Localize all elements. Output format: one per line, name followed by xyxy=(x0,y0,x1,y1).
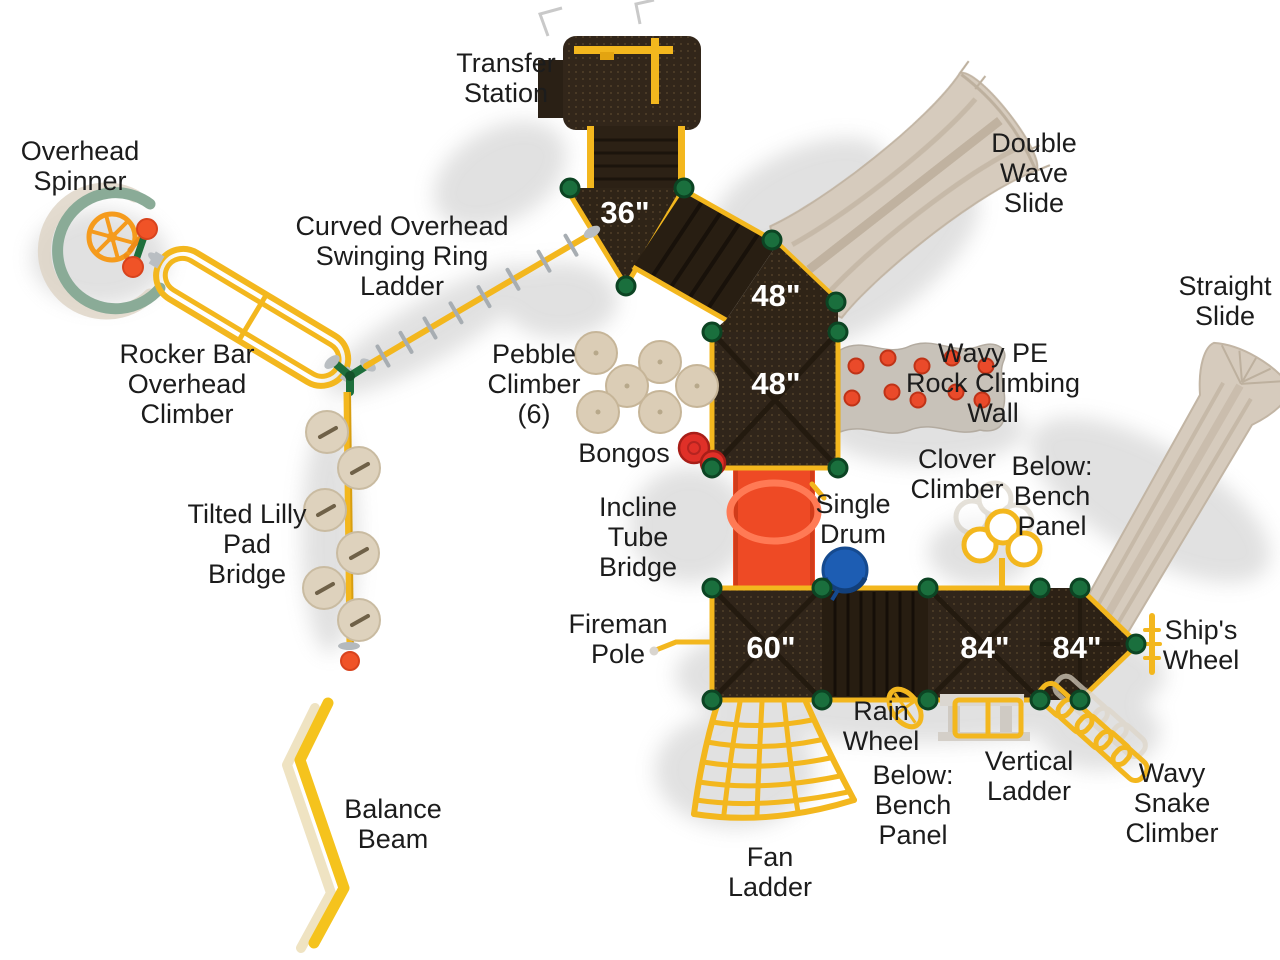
label-wavy-snake-climber: Wavy Snake Climber xyxy=(1125,758,1218,848)
label-curved-overhead-swinging-ring-ladder: Curved Overhead Swinging Ring Ladder xyxy=(295,211,508,301)
pebble-climber xyxy=(575,332,718,433)
label-ships-wheel: Ship's Wheel xyxy=(1163,615,1240,675)
label-below-bench-panel-right: Below: Bench Panel xyxy=(1011,451,1092,541)
balance-beam xyxy=(287,703,344,948)
deck-size-60: 60" xyxy=(746,630,795,666)
deck-size-84-left: 84" xyxy=(960,630,1009,666)
deck-size-84-right: 84" xyxy=(1052,630,1101,666)
label-pebble-climber: Pebble Climber (6) xyxy=(487,339,580,429)
label-balance-beam: Balance Beam xyxy=(344,794,442,854)
label-transfer-station: Transfer Station xyxy=(456,48,556,108)
label-fan-ladder: Fan Ladder xyxy=(728,842,812,902)
label-rain-wheel: Rain Wheel xyxy=(843,696,920,756)
label-vertical-ladder: Vertical Ladder xyxy=(985,746,1074,806)
label-double-wave-slide: Double Wave Slide xyxy=(991,128,1077,218)
label-clover-climber: Clover Climber xyxy=(910,444,1003,504)
label-fireman-pole: Fireman Pole xyxy=(568,609,667,669)
label-incline-tube-bridge: Incline Tube Bridge xyxy=(599,492,677,582)
label-rocker-bar-overhead-climber: Rocker Bar Overhead Climber xyxy=(119,339,254,429)
label-below-bench-panel-bottom: Below: Bench Panel xyxy=(872,760,953,850)
deck-size-36: 36" xyxy=(600,195,649,231)
deck-size-48-lower: 48" xyxy=(751,366,800,402)
deck-stairs xyxy=(822,588,928,700)
label-tilted-lilly-pad-bridge: Tilted Lilly Pad Bridge xyxy=(187,499,306,589)
label-straight-slide: Straight Slide xyxy=(1178,271,1271,331)
label-single-drum: Single Drum xyxy=(815,489,890,549)
playground-diagram: Transfer Station Double Wave Slide Overh… xyxy=(0,0,1280,960)
deck-size-48-upper: 48" xyxy=(751,278,800,314)
label-overhead-spinner: Overhead Spinner xyxy=(21,136,140,196)
label-bongos: Bongos xyxy=(578,438,670,468)
label-wavy-pe-rock-climbing-wall: Wavy PE Rock Climbing Wall xyxy=(906,338,1080,428)
